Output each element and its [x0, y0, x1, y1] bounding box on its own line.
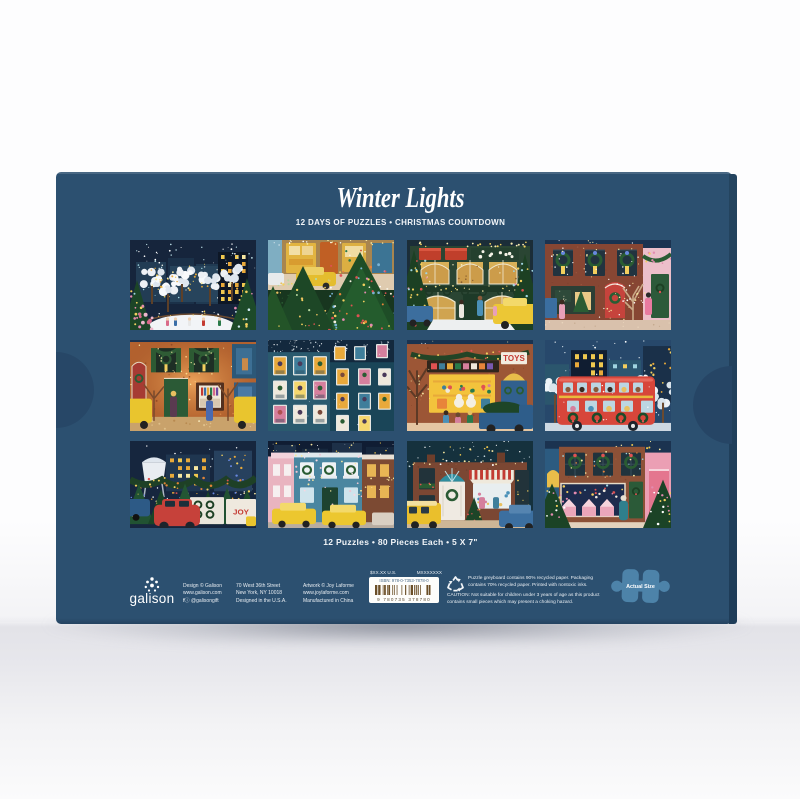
svg-text:JOY: JOY [233, 508, 250, 517]
svg-text:Actual Size: Actual Size [626, 584, 655, 590]
svg-text:TOYS: TOYS [503, 354, 525, 363]
